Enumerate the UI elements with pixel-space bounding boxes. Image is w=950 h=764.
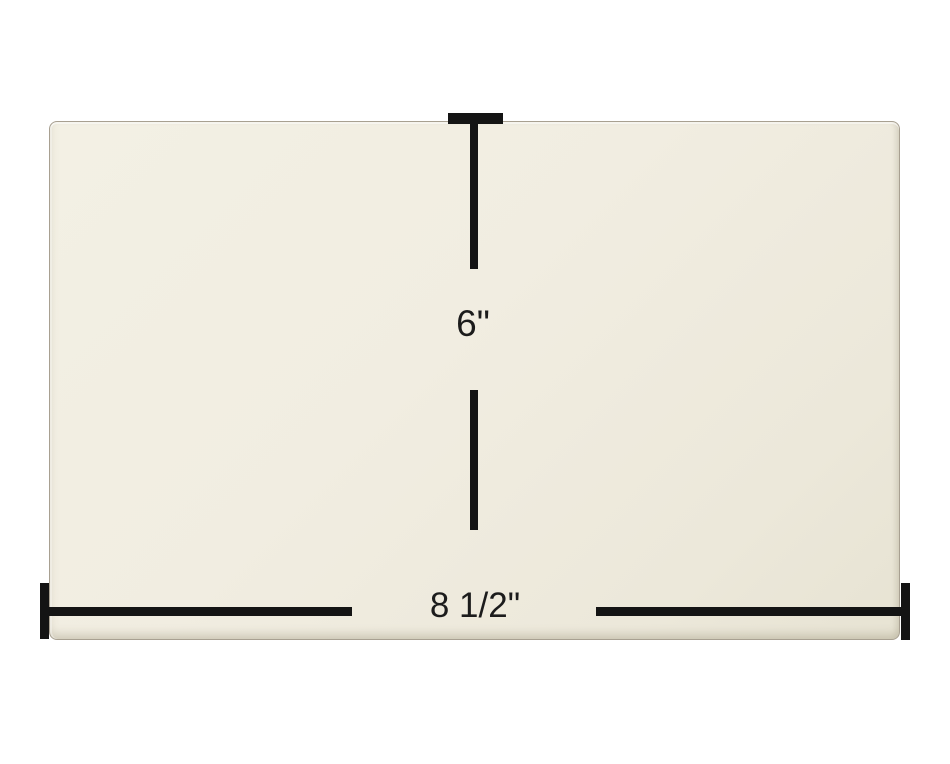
- width-dimension-line-right: [596, 607, 905, 616]
- height-dimension-line-upper: [470, 113, 478, 269]
- width-dimension-line-left: [42, 607, 352, 616]
- width-dimension-right-cap: [901, 583, 910, 640]
- height-dimension-line-lower: [470, 390, 478, 530]
- diagram-canvas: 6" 8 1/2": [0, 0, 950, 764]
- height-dimension-label: 6": [456, 305, 490, 342]
- width-dimension-label: 8 1/2": [430, 588, 520, 623]
